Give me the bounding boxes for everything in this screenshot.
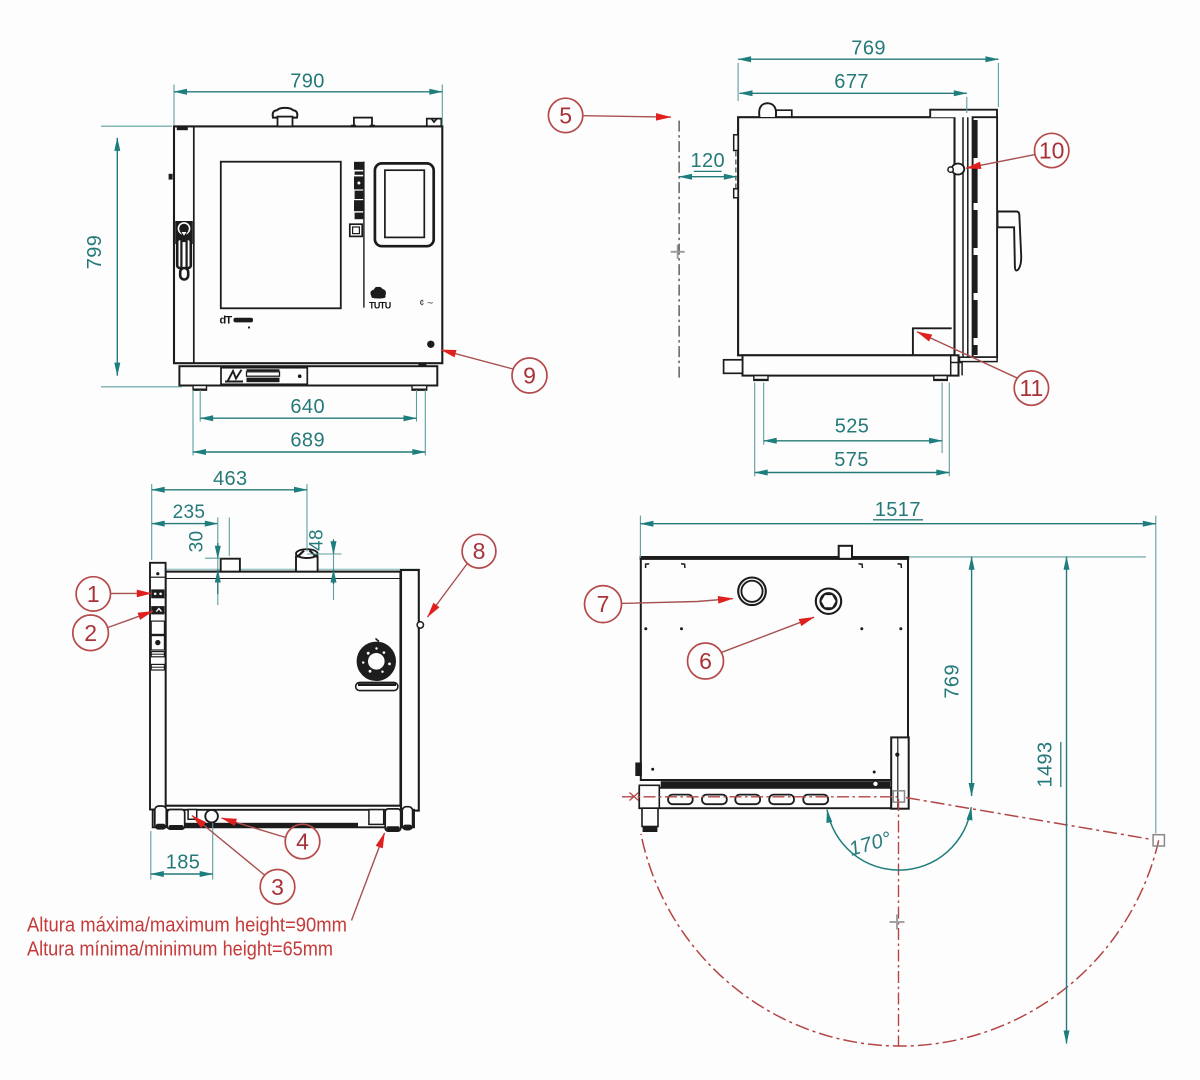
svg-text:677: 677 bbox=[834, 71, 869, 93]
svg-text:7: 7 bbox=[597, 591, 610, 617]
svg-text:463: 463 bbox=[213, 468, 248, 490]
svg-text:235: 235 bbox=[173, 502, 206, 523]
svg-text:525: 525 bbox=[835, 415, 870, 437]
svg-text:10: 10 bbox=[1039, 138, 1065, 164]
svg-text:689: 689 bbox=[290, 430, 325, 452]
svg-text:1493: 1493 bbox=[1035, 741, 1057, 787]
svg-text:11: 11 bbox=[1019, 375, 1043, 401]
svg-text:48: 48 bbox=[307, 529, 328, 551]
svg-text:2: 2 bbox=[84, 620, 97, 646]
svg-text:3: 3 bbox=[271, 874, 284, 900]
svg-text:185: 185 bbox=[166, 851, 201, 873]
svg-text:TUTU: TUTU bbox=[369, 301, 391, 311]
svg-text:1517: 1517 bbox=[875, 499, 921, 521]
svg-text:1: 1 bbox=[87, 581, 100, 607]
svg-text:dT: dT bbox=[220, 315, 233, 327]
svg-text:Altura mínima/minimum height=6: Altura mínima/minimum height=65mm bbox=[27, 939, 333, 961]
svg-text:5: 5 bbox=[559, 102, 572, 128]
svg-text:30: 30 bbox=[187, 531, 208, 553]
svg-text:8: 8 bbox=[473, 538, 486, 564]
svg-text:4: 4 bbox=[296, 829, 309, 855]
svg-text:640: 640 bbox=[290, 396, 325, 418]
svg-text:575: 575 bbox=[834, 449, 869, 471]
svg-text:¢ ∼: ¢ ∼ bbox=[420, 298, 434, 308]
svg-text:790: 790 bbox=[290, 71, 325, 93]
svg-text:120: 120 bbox=[691, 150, 726, 172]
svg-text:6: 6 bbox=[699, 648, 712, 674]
svg-text:9: 9 bbox=[523, 363, 536, 389]
svg-text:769: 769 bbox=[851, 38, 886, 60]
svg-text:799: 799 bbox=[84, 235, 106, 270]
svg-text:Altura máxima/maximum height=9: Altura máxima/maximum height=90mm bbox=[27, 915, 347, 937]
svg-text:769: 769 bbox=[942, 664, 964, 699]
